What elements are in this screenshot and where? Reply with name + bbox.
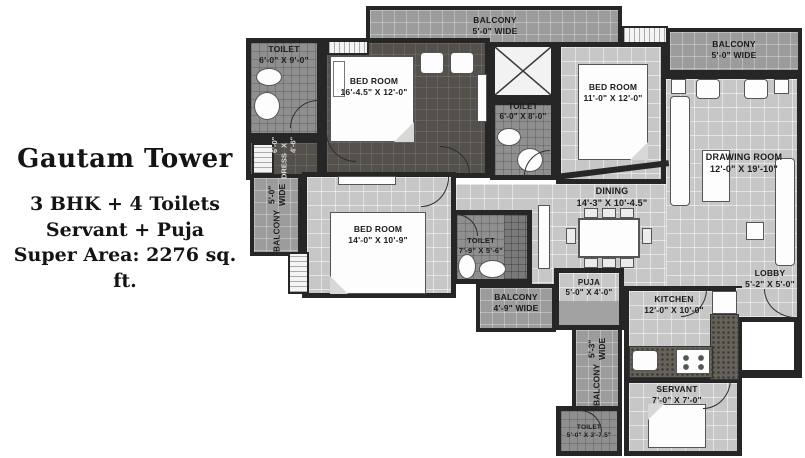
dining-table — [578, 218, 640, 258]
sofa-left — [670, 96, 690, 206]
side-cabinet — [477, 74, 487, 122]
label-drawing-room: DRAWING ROOM12'-0" X 19'-10" — [686, 152, 802, 175]
room-dims: 4'-9" WIDE — [494, 303, 539, 314]
project-title: Gautam Tower — [6, 144, 244, 174]
wc — [254, 92, 280, 120]
dining-chair — [602, 208, 616, 218]
bed-fold — [330, 276, 348, 294]
room-name: KITCHEN — [654, 294, 693, 305]
room-name: BED ROOM — [589, 82, 637, 93]
room-dims: 6'-0" X 9'-0" — [259, 55, 309, 66]
dining-chair — [602, 258, 616, 268]
stove — [676, 349, 710, 374]
project-extras: Servant + Puja — [6, 218, 244, 244]
label-toilet-servant: TOILET5'-0" X 3'-7.5" — [560, 424, 618, 441]
room-name: DRESS — [279, 153, 288, 179]
room-name: BALCONY — [494, 292, 537, 303]
armchair — [744, 79, 768, 99]
room-name: BED ROOM — [354, 224, 402, 235]
wardrobe-bedroom-3 — [288, 252, 309, 294]
side-table — [746, 222, 764, 240]
room-name: DINING — [596, 186, 629, 198]
room-dims: 12'-0" X 10'-0" — [644, 305, 704, 316]
puja-floor-band — [559, 301, 619, 325]
room-name: BALCONY — [272, 210, 283, 252]
label-puja: PUJA5'-0" X 4'-0" — [556, 278, 622, 299]
project-area: Super Area: 2276 sq. ft. — [6, 243, 244, 294]
label-balcony-bottom: BALCONY5'-3" WIDE — [578, 334, 616, 406]
title-block: Gautam Tower 3 BHK + 4 Toilets Servant +… — [6, 144, 244, 295]
room-name: SERVANT — [656, 384, 697, 395]
label-lobby: LOBBY5'-2" X 5'-0" — [738, 268, 802, 290]
wash-basin — [256, 68, 282, 86]
label-toilet-common: TOILET6'-0" X 8'-0" — [492, 102, 554, 123]
room-name: BALCONY — [592, 364, 603, 406]
bed-2 — [578, 64, 648, 160]
label-bedroom-master: BED ROOM16'-4.5" X 12'-0" — [328, 76, 420, 98]
label-balcony-top: BALCONY5'-0" WIDE — [430, 15, 560, 37]
room-dims: 14'-0" X 10'-9" — [348, 235, 408, 246]
label-dining: DINING14'-3" X 10'-4.5" — [556, 186, 668, 209]
room-dims: 12'-0" X 19'-10" — [710, 164, 778, 176]
room-name: TOILET — [467, 236, 495, 246]
wc — [497, 128, 521, 146]
side-table — [774, 79, 789, 94]
label-balcony-left: BALCONY5'-0" WIDE — [256, 180, 298, 252]
room-name: TOILET — [508, 102, 538, 112]
room-name: PUJA — [578, 278, 600, 288]
room-dims: 16'-4.5" X 12'-0" — [340, 87, 407, 98]
room-dims: 11'-0" X 12'-0" — [583, 93, 642, 104]
armchair — [420, 52, 444, 74]
room-dims: 5'-0" X 4'-0" — [566, 288, 613, 298]
project-config: 3 BHK + 4 Toilets — [6, 192, 244, 218]
dining-chair — [642, 228, 652, 244]
side-table — [671, 79, 686, 94]
label-toilet-3: TOILET7'-9" X 5'-6" — [454, 236, 508, 256]
label-balcony-mid: BALCONY4'-9" WIDE — [480, 292, 552, 314]
shaft-x-icon — [495, 47, 551, 95]
entry-wall-stub-v — [794, 318, 802, 376]
room-name: BALCONY — [712, 39, 755, 50]
room-dims: 6'-0" X 8'-0" — [500, 112, 547, 122]
bed-fold — [648, 404, 664, 420]
master-bed — [330, 56, 414, 142]
label-toilet-master: TOILET6'-0" X 9'-0" — [250, 44, 318, 66]
room-dims: 7'-9" X 5'-6" — [459, 246, 503, 256]
room-dims: 6'-0" X 4'-6" — [270, 137, 298, 153]
label-balcony-top-right: BALCONY5'-0" WIDE — [670, 39, 798, 61]
bed-fold — [630, 142, 648, 160]
sink — [632, 350, 658, 371]
room-name: BALCONY — [473, 15, 516, 26]
label-bedroom-3: BED ROOM14'-0" X 10'-9" — [330, 224, 426, 246]
wc — [458, 254, 476, 279]
floor-plan-canvas: Gautam Tower 3 BHK + 4 Toilets Servant +… — [0, 0, 805, 458]
room-name: TOILET — [268, 44, 299, 55]
dining-chair — [620, 208, 634, 218]
label-servant: SERVANT7'-0" X 7'-0" — [632, 384, 722, 406]
shelf — [338, 176, 396, 185]
room-dims: 5'-3" WIDE — [586, 334, 607, 364]
crockery-cabinet — [538, 205, 550, 269]
dining-chair — [584, 258, 598, 268]
armchair — [696, 79, 720, 99]
room-name: TOILET — [577, 424, 601, 432]
kitchen-counter-right — [710, 314, 739, 380]
label-kitchen: KITCHEN12'-0" X 10'-0" — [629, 294, 719, 316]
room-name: BED ROOM — [350, 76, 398, 87]
servant-bed — [648, 404, 706, 448]
dining-chair — [620, 258, 634, 268]
armchair — [450, 52, 474, 74]
room-dims: 5'-0" X 3'-7.5" — [567, 432, 611, 440]
dining-chair — [584, 208, 598, 218]
room-dims: 5'-2" X 5'-0" — [745, 279, 795, 290]
room-dims: 14'-3" X 10'-4.5" — [577, 198, 648, 210]
wardrobe-master-top — [327, 40, 369, 55]
room-dims: 5'-0" WIDE — [473, 26, 518, 37]
shaft — [490, 42, 556, 100]
bed-fold — [394, 122, 414, 142]
room-dims: 7'-0" X 7'-0" — [652, 395, 702, 406]
entry-wall-stub-h — [740, 370, 802, 378]
passage — [456, 184, 526, 210]
room-dims: 5'-0" WIDE — [712, 50, 757, 61]
label-dress: DRESS6'-0" X 4'-6" — [274, 138, 294, 178]
room-dims: 5'-0" WIDE — [266, 180, 287, 210]
label-bedroom-2: BED ROOM11'-0" X 12'-0" — [574, 82, 652, 104]
wash-basin — [479, 260, 506, 278]
room-name: DRAWING ROOM — [706, 152, 782, 164]
dining-chair — [566, 228, 576, 244]
room-name: LOBBY — [755, 268, 786, 279]
